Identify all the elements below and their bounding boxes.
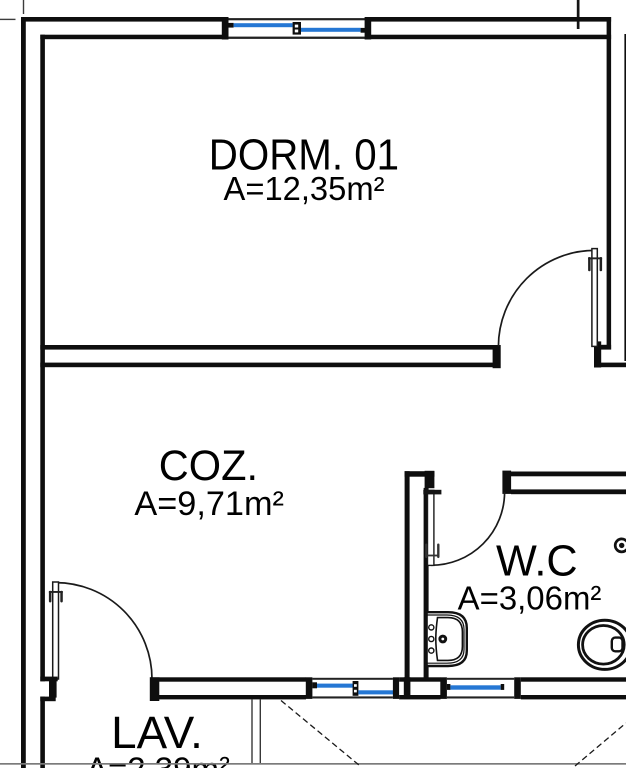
svg-text:A=3,06m²: A=3,06m² [458, 581, 602, 618]
svg-text:A=9,71m²: A=9,71m² [134, 485, 284, 523]
svg-text:COZ.: COZ. [159, 442, 258, 490]
svg-text:A=2,39m²: A=2,39m² [86, 752, 230, 768]
svg-text:W.C: W.C [496, 537, 578, 586]
svg-text:LAV.: LAV. [111, 707, 203, 758]
svg-text:A=12,35m²: A=12,35m² [224, 170, 385, 207]
